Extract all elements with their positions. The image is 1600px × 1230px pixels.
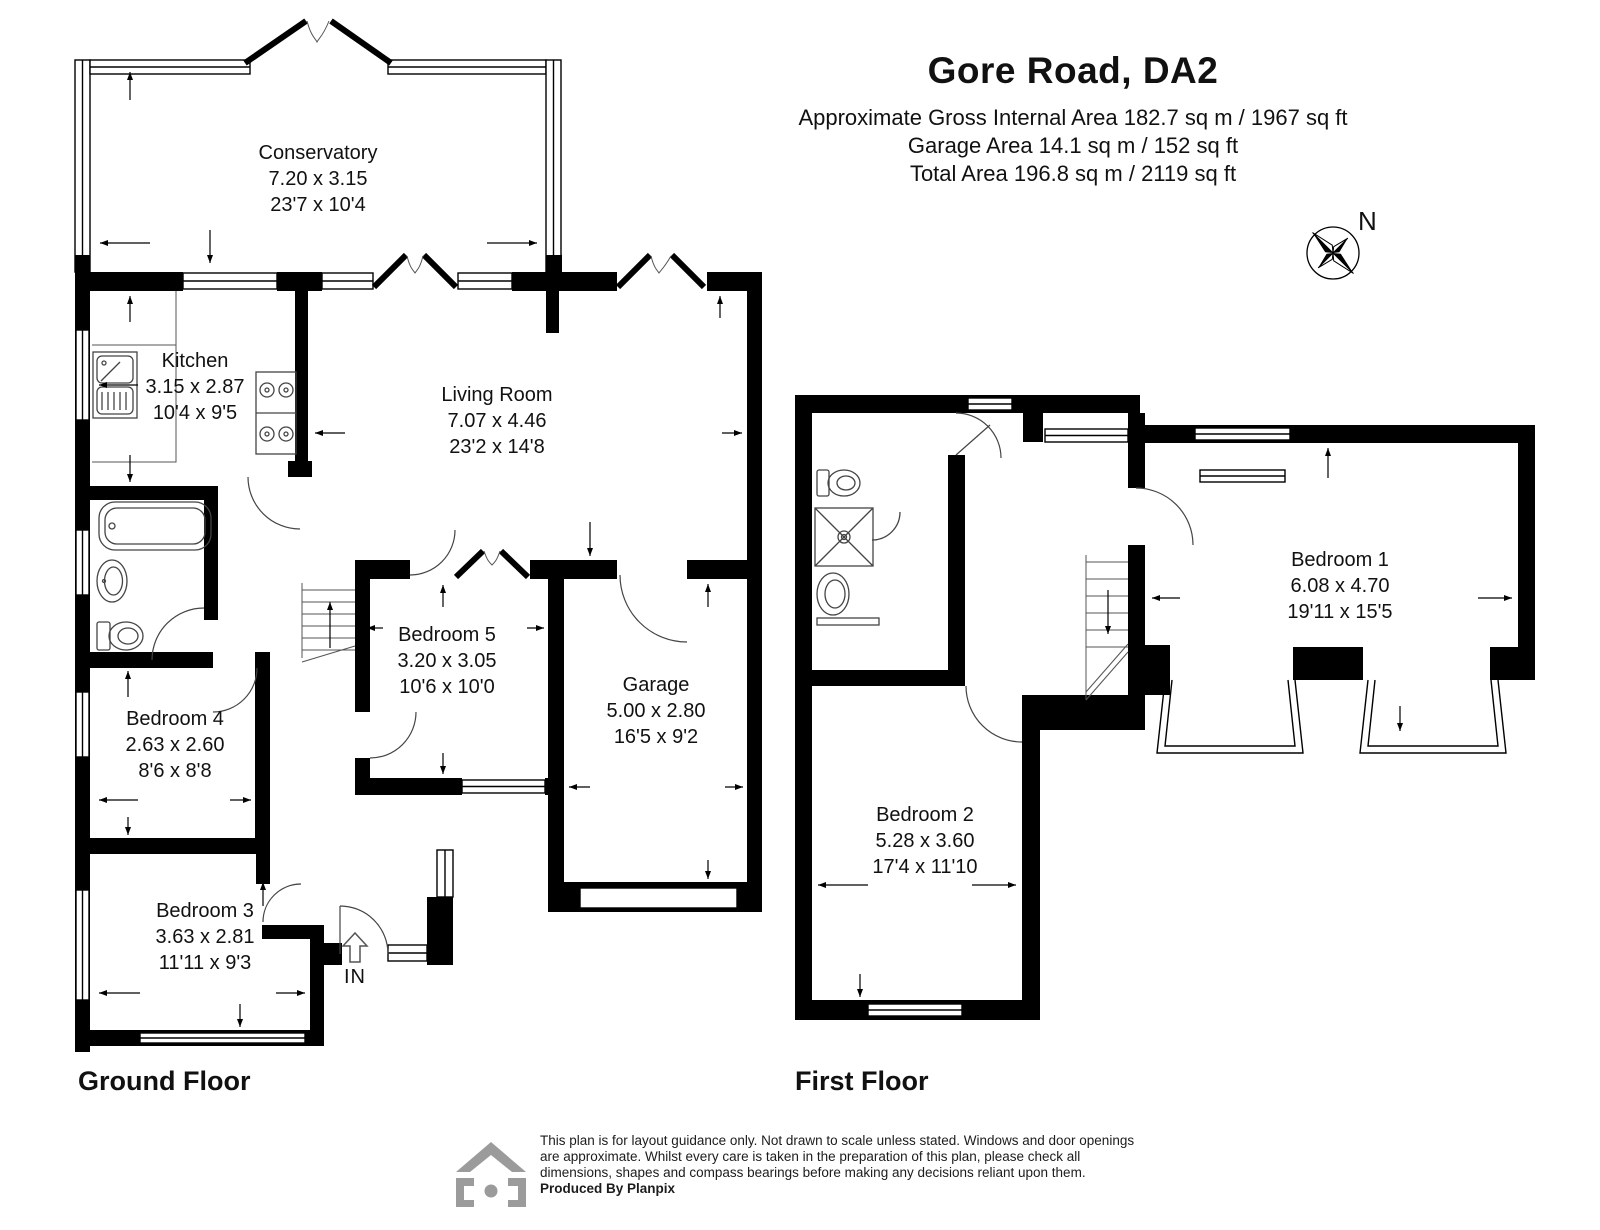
bathtub-icon (99, 502, 211, 550)
compass-north-label: N (1358, 206, 1377, 237)
first-floor-stairs-icon (1086, 555, 1128, 700)
room-label-bedroom-2: Bedroom 2 5.28 x 3.60 17'4 x 11'10 (795, 802, 1055, 880)
bay-windows-icon (1157, 680, 1506, 753)
toilet-icon (97, 622, 143, 650)
first-floor-dimension-arrows (818, 448, 1512, 997)
room-label-bedroom-4: Bedroom 4 2.63 x 2.60 8'6 x 8'8 (45, 706, 305, 784)
first-floor-title: First Floor (795, 1066, 929, 1097)
disclaimer-line-1: This plan is for layout guidance only. N… (540, 1133, 1220, 1149)
first-floor-sink-icon (817, 573, 879, 625)
entrance-arrow-icon (343, 933, 367, 962)
bathroom-sink-icon (97, 560, 127, 602)
area-line-3: Total Area 196.8 sq m / 2119 sq ft (723, 160, 1423, 188)
room-label-conservatory: Conservatory 7.20 x 3.15 23'7 x 10'4 (188, 140, 448, 218)
ground-floor-title: Ground Floor (78, 1066, 250, 1097)
room-label-living-room: Living Room 7.07 x 4.46 23'2 x 14'8 (367, 382, 627, 460)
entrance-label: IN (344, 966, 366, 989)
room-label-garage: Garage 5.00 x 2.80 16'5 x 9'2 (526, 672, 786, 750)
footer-disclaimer: This plan is for layout guidance only. N… (540, 1133, 1220, 1196)
shower-icon (815, 508, 900, 566)
room-label-kitchen: Kitchen 3.15 x 2.87 10'4 x 9'5 (65, 348, 325, 426)
disclaimer-line-3: dimensions, shapes and compass bearings … (540, 1165, 1220, 1181)
first-floor-plan (795, 395, 1535, 1020)
area-line-1: Approximate Gross Internal Area 182.7 sq… (723, 104, 1423, 132)
conservatory-gable-icon (245, 21, 391, 63)
disclaimer-line-2: are approximate. Whilst every care is ta… (540, 1149, 1220, 1165)
floorplan-page: Gore Road, DA2 Approximate Gross Interna… (0, 0, 1600, 1230)
area-line-2: Garage Area 14.1 sq m / 152 sq ft (723, 132, 1423, 160)
first-floor-walls (795, 395, 1535, 1020)
produced-by-label: Produced By Planpix (540, 1181, 1220, 1196)
first-floor-toilet-icon (817, 470, 860, 496)
room-label-bedroom-3: Bedroom 3 3.63 x 2.81 11'11 x 9'3 (75, 898, 335, 976)
planpix-logo-icon (456, 1142, 526, 1207)
room-label-bedroom-1: Bedroom 1 6.08 x 4.70 19'11 x 15'5 (1210, 547, 1470, 625)
page-title: Gore Road, DA2 (723, 50, 1423, 92)
